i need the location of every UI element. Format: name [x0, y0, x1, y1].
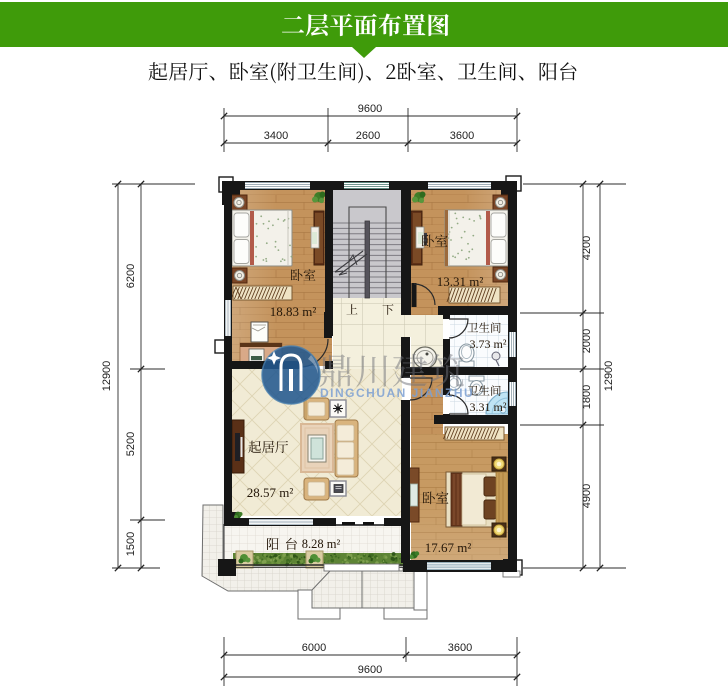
svg-text:6000: 6000 [302, 642, 326, 654]
svg-text:9600: 9600 [358, 103, 382, 115]
svg-text:3.31 m²: 3.31 m² [470, 400, 507, 414]
svg-text:3600: 3600 [448, 642, 472, 654]
svg-text:3600: 3600 [450, 130, 474, 142]
svg-text:6200: 6200 [125, 264, 137, 288]
svg-text:13.31 m²: 13.31 m² [437, 274, 484, 289]
svg-text:18.83 m²: 18.83 m² [270, 304, 317, 319]
svg-text:2000: 2000 [581, 329, 593, 353]
svg-text:9600: 9600 [358, 664, 382, 676]
svg-text:1500: 1500 [125, 532, 137, 556]
svg-text:4200: 4200 [581, 236, 593, 260]
svg-text:3.73 m²: 3.73 m² [470, 337, 507, 351]
svg-text:5200: 5200 [125, 432, 137, 456]
svg-text:4900: 4900 [581, 484, 593, 508]
svg-text:17.67 m²: 17.67 m² [425, 540, 472, 555]
svg-text:DINGCHUAN JIANZHU: DINGCHUAN JIANZHU [320, 386, 474, 400]
svg-text:28.57 m²: 28.57 m² [247, 485, 294, 500]
svg-text:2600: 2600 [356, 130, 380, 142]
svg-text:1800: 1800 [581, 385, 593, 409]
svg-text:12900: 12900 [101, 361, 113, 392]
svg-text:12900: 12900 [603, 361, 615, 392]
svg-text:8.28 m²: 8.28 m² [302, 537, 341, 551]
svg-text:3400: 3400 [264, 130, 288, 142]
